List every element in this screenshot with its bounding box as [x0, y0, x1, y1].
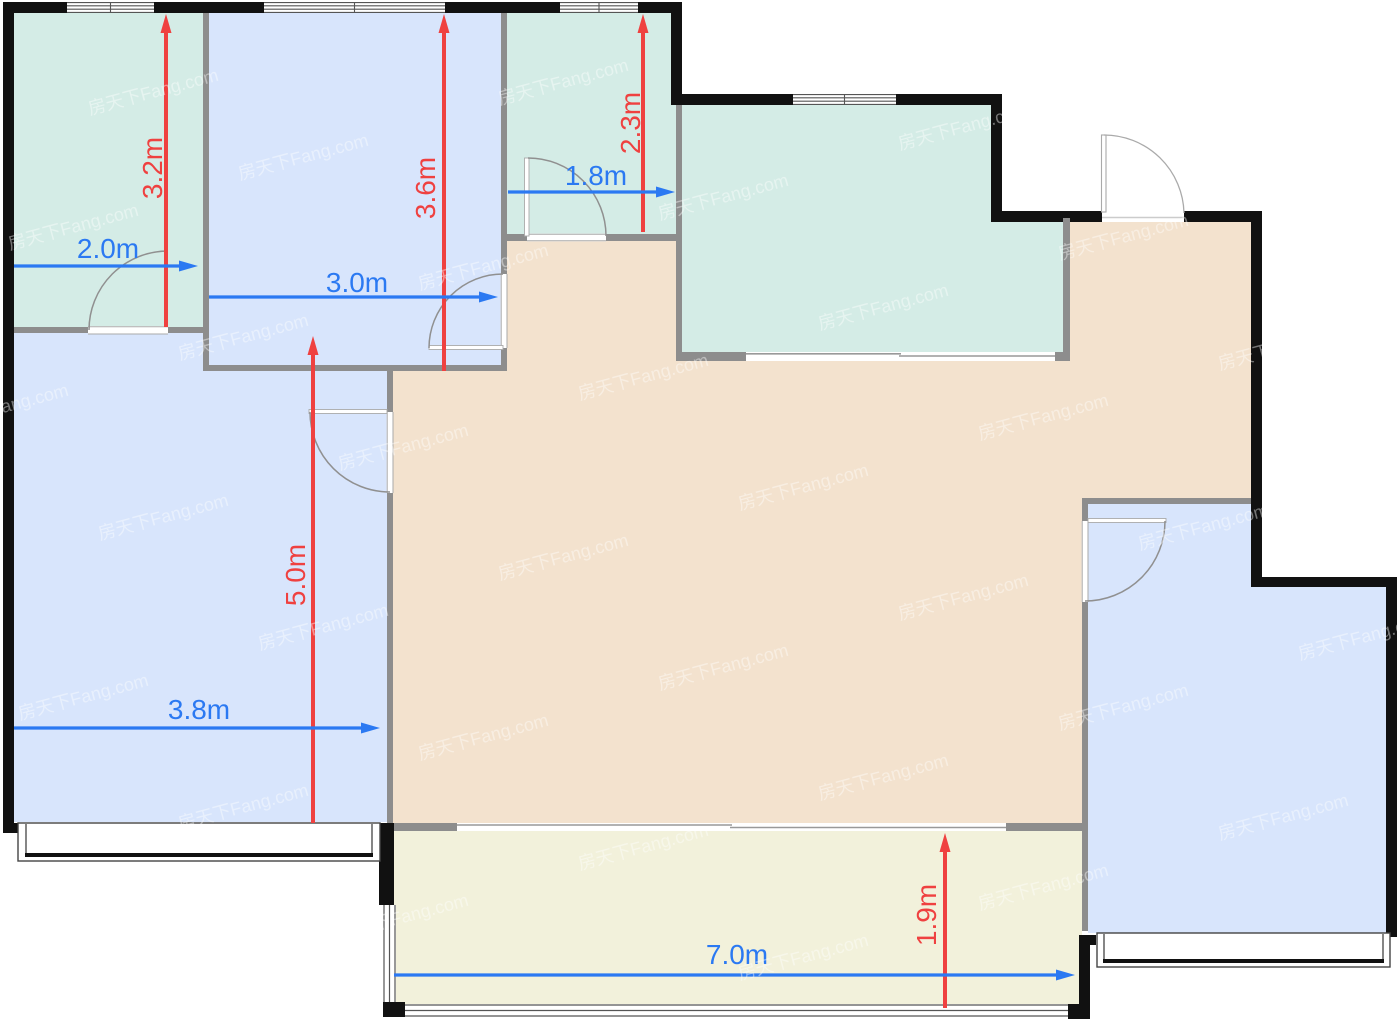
svg-text:3.2m: 3.2m	[137, 137, 168, 199]
svg-text:5.0m: 5.0m	[280, 544, 311, 606]
svg-text:3.6m: 3.6m	[410, 157, 441, 219]
svg-text:房天下Fang.com: 房天下Fang.com	[1136, 970, 1271, 1020]
svg-text:1.9m: 1.9m	[911, 884, 942, 946]
svg-text:3.8m: 3.8m	[168, 694, 230, 725]
svg-text:2.3m: 2.3m	[615, 92, 646, 154]
svg-text:2.0m: 2.0m	[77, 233, 139, 264]
svg-text:1.8m: 1.8m	[565, 160, 627, 191]
svg-text:3.0m: 3.0m	[326, 267, 388, 298]
